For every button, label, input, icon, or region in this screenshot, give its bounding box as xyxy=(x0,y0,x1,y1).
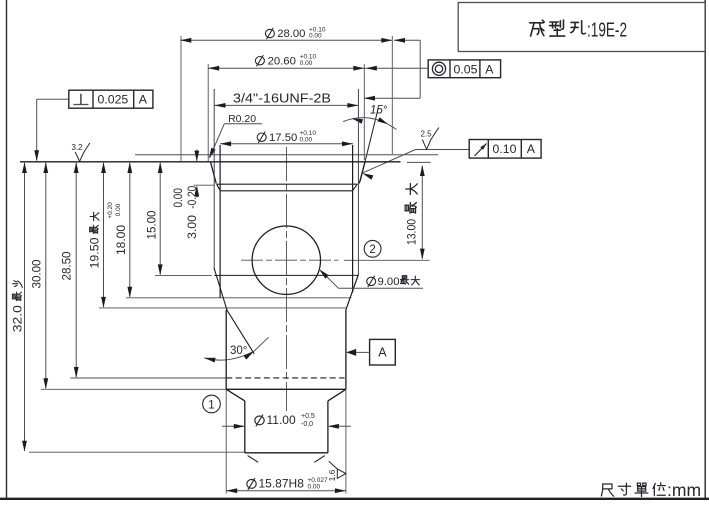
svg-text:15°: 15° xyxy=(370,105,388,117)
svg-text:3/4"-16UNF-2B: 3/4"-16UNF-2B xyxy=(233,90,331,105)
svg-text:3.2: 3.2 xyxy=(72,143,84,152)
svg-text:0.025: 0.025 xyxy=(98,93,129,107)
svg-text:R0.20: R0.20 xyxy=(228,113,256,125)
svg-text:20.60: 20.60 xyxy=(268,55,296,67)
svg-text:30.00: 30.00 xyxy=(30,259,44,288)
svg-text:0.00: 0.00 xyxy=(309,33,322,40)
svg-text:A: A xyxy=(378,346,387,360)
svg-text:2: 2 xyxy=(369,244,375,256)
svg-text:0.00: 0.00 xyxy=(308,483,321,490)
svg-text:1: 1 xyxy=(208,399,214,411)
svg-text:15.87H8: 15.87H8 xyxy=(259,477,305,491)
svg-text:A: A xyxy=(527,142,536,156)
svg-text:0.05: 0.05 xyxy=(454,62,478,76)
svg-text:18.00: 18.00 xyxy=(114,225,128,255)
svg-text:0.00: 0.00 xyxy=(300,136,313,143)
svg-text:+0.5: +0.5 xyxy=(301,413,315,420)
svg-text:A: A xyxy=(485,62,494,76)
svg-text:+0.20: +0.20 xyxy=(107,202,114,219)
svg-text:30°: 30° xyxy=(230,345,247,357)
svg-text:9.00: 9.00 xyxy=(378,276,400,288)
svg-text:A: A xyxy=(139,93,148,107)
svg-text:0.00: 0.00 xyxy=(300,60,313,67)
svg-text:32.0: 32.0 xyxy=(11,305,25,332)
svg-text:1.6: 1.6 xyxy=(327,469,337,481)
svg-text:11.00: 11.00 xyxy=(267,413,296,427)
svg-text:0.10: 0.10 xyxy=(493,142,517,156)
svg-text:0.00: 0.00 xyxy=(171,188,185,208)
svg-text::mm: :mm xyxy=(667,480,701,500)
svg-text:2.5: 2.5 xyxy=(421,130,433,139)
svg-text:-0.0: -0.0 xyxy=(301,421,313,428)
svg-text:3.00: 3.00 xyxy=(185,215,199,239)
svg-text:0.00: 0.00 xyxy=(115,203,122,216)
svg-text:15.00: 15.00 xyxy=(145,210,159,239)
svg-text:28.00: 28.00 xyxy=(277,28,305,40)
svg-text:17.50: 17.50 xyxy=(269,132,297,144)
svg-text:28.50: 28.50 xyxy=(60,251,74,280)
svg-text::19E-2: :19E-2 xyxy=(587,19,627,42)
svg-text:19.50: 19.50 xyxy=(88,237,102,268)
svg-text:13.00: 13.00 xyxy=(405,219,419,245)
